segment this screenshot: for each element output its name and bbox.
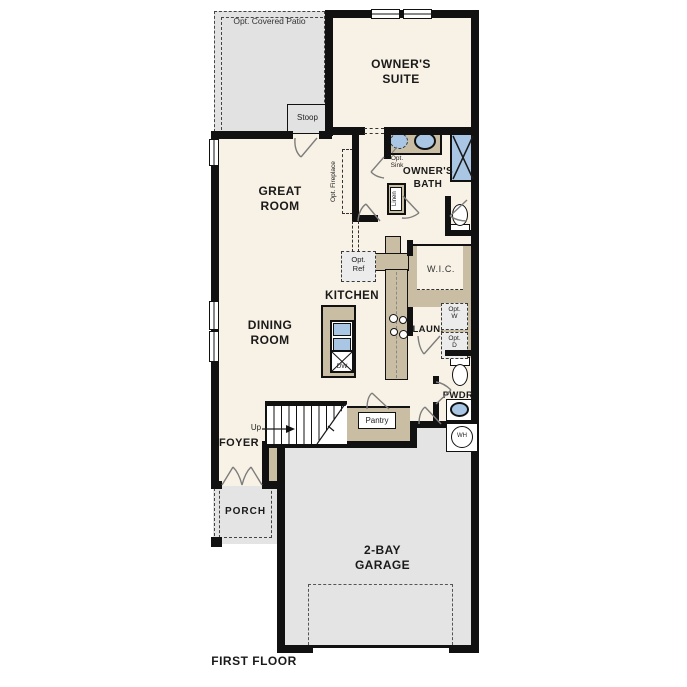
wall-pwdr-left-a [433,376,439,384]
stoop-label: Stoop [287,113,328,122]
wall-front-left [211,481,222,489]
cooktop-burner-4 [399,330,408,339]
linen-label: Linen [392,188,399,210]
wall-suite-top [325,10,475,18]
garage-door-swing-area [308,584,453,645]
wall-garage-bottom-right [449,645,479,653]
pwdr-toilet-bowl [452,364,468,386]
optional-sink [390,133,408,149]
window-suite-2 [403,9,432,19]
cooktop-burner-2 [399,316,407,324]
cooktop-burner-1 [389,314,398,323]
pantry-label: Pantry [358,416,396,425]
wall-foyer-right [262,446,269,488]
patio-inner-dash-left [221,17,222,130]
foyer-label: FOYER [215,437,263,451]
counter-center-dashline [396,272,397,378]
wic-label: W.I.C. [411,264,471,274]
kitchen-label: KITCHEN [321,289,383,303]
window-great-room [209,139,219,166]
stairs [265,405,347,445]
window-dining-1 [209,301,219,330]
pwdr-sink [450,402,469,417]
wall-pwdr-left-b [433,402,439,423]
garage-door-line [311,645,451,648]
wall-kitchen-wic [407,240,413,256]
porch-label: PORCH [218,506,273,519]
great-room-label: GREAT ROOM [225,184,335,214]
owners-suite-label: OWNER'S SUITE [331,57,471,87]
island-sink-basin-top [333,323,351,336]
opt-ref-label: Opt. Ref [341,256,376,273]
wall-great-top-left [213,131,293,139]
laundry-label: LAUN. [411,324,445,336]
water-heater-label: WH [451,433,473,440]
opt-dryer-label: Opt. D [441,335,468,350]
dining-room-label: DINING ROOM [238,318,302,348]
porch-post [211,537,222,547]
owners-bath-label: OWNER'S BATH [398,166,458,191]
cooktop-burner-3 [390,328,398,336]
wall-wc-bottom [445,230,477,236]
opt-fireplace-label: Opt. Fireplace [330,149,337,215]
opening-suite-hall [364,128,384,134]
floor-plan: Opt. Covered Patio OWNER'S SUITE Stoop G… [0,0,687,687]
garage-label: 2-BAY GARAGE [330,543,435,573]
patio-label: Opt. Covered Patio [214,17,325,27]
wall-suite-bottom-a [325,127,365,135]
wall-right [471,10,479,652]
first-floor-title: FIRST FLOOR [208,654,300,669]
porch-dash-outer [214,488,215,541]
wall-garage-top-conn [410,421,417,448]
bath-toilet-bowl [452,204,468,226]
up-label: Up [248,423,264,432]
wall-garage-left [277,446,285,652]
opening-great-kitchen [352,221,359,252]
wall-suite-bottom-b [384,127,475,135]
wall-laundry-pwdr [445,350,473,356]
opt-washer-label: Opt. W [441,306,468,321]
wall-great-right [352,131,359,222]
wall-garage-bottom-left [277,645,313,653]
window-dining-2 [209,331,219,362]
pwdr-label: PWDR [441,390,475,402]
dishwasher-label: DW [330,363,354,370]
window-suite-1 [371,9,400,19]
